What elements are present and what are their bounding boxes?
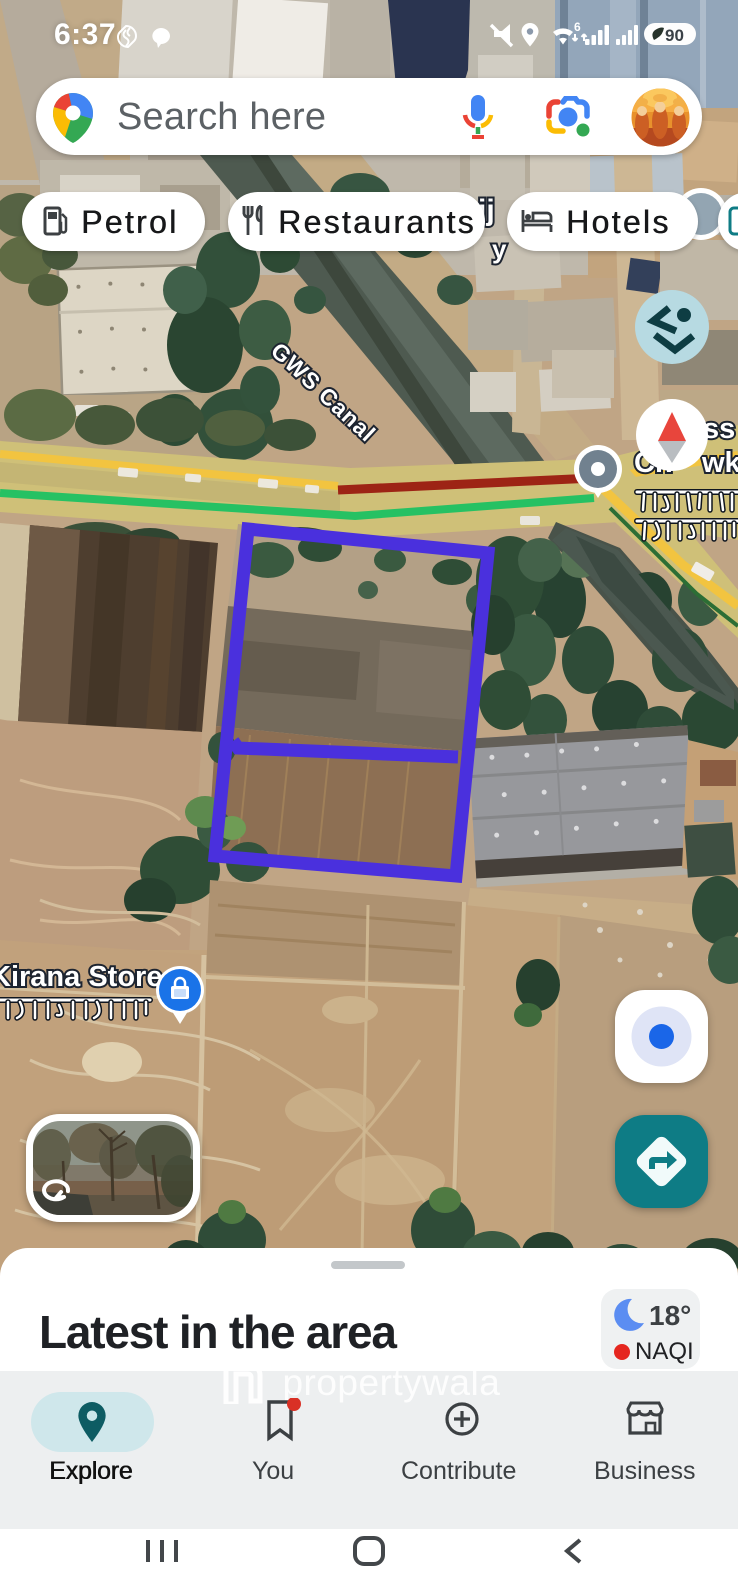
svg-text:Kirana Store: Kirana Store <box>0 961 162 993</box>
svg-text:6: 6 <box>574 22 581 34</box>
svg-text:y: y <box>492 234 507 264</box>
svg-text:wk D: wk D <box>701 447 738 479</box>
svg-text:ss: ss <box>703 413 735 445</box>
svg-text:90: 90 <box>665 26 684 45</box>
